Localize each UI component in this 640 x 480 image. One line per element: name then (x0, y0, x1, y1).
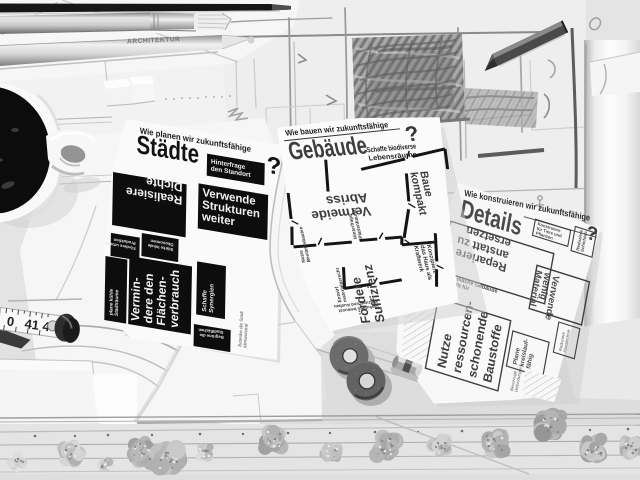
svg-text:plane kühleStadträume: plane kühleStadträume (108, 288, 120, 317)
